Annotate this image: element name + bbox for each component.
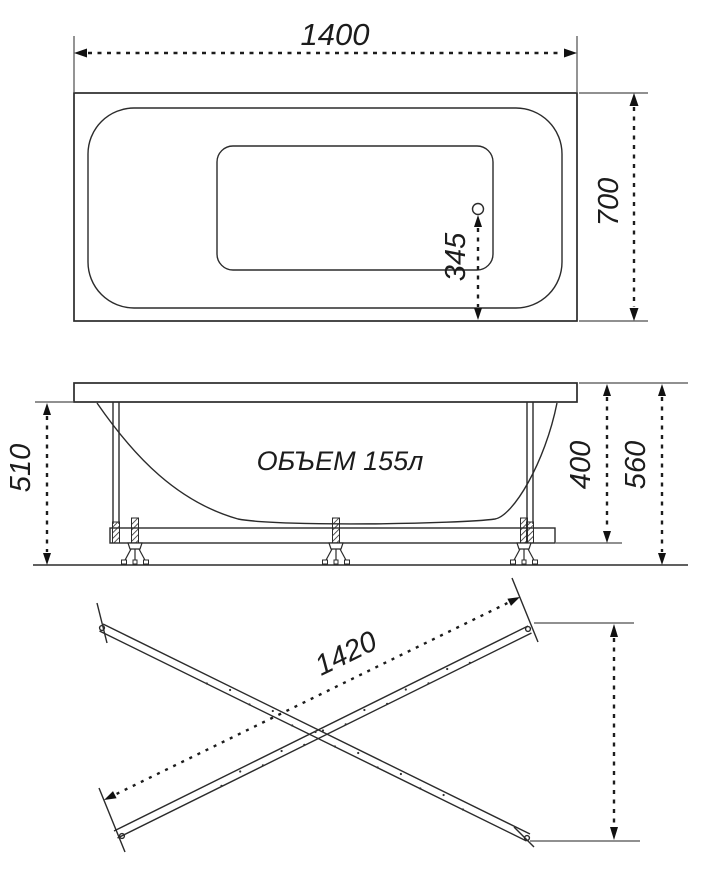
arrow-down-icon [43,553,51,565]
arrow-up-icon [474,215,482,227]
rim-to-frame-value: 400 [565,441,597,489]
arrow-up-icon [43,403,51,415]
rim-to-floor-value: 510 [5,444,37,492]
arrow-down-icon [603,531,611,543]
tub-outer-edge [74,93,577,321]
total-height-value: 560 [620,441,652,489]
arrow-up-icon [610,624,618,637]
dim-510: 510 [5,402,74,565]
arrow-left-icon [104,791,117,800]
rail-end-cap [97,603,107,643]
dim-drain-345: 345 [440,215,482,320]
drain-offset-value: 345 [440,232,472,281]
bathtub-technical-drawing: 1400 700 345 [0,0,703,888]
arrow-down-icon [658,553,666,565]
tub-rim-deck [74,383,577,402]
arrow-down-icon [610,827,618,840]
rail-bolt-hole [526,627,531,632]
adjustable-foot [323,518,350,564]
drawing-canvas: 1400 700 345 [0,0,703,888]
dim-rail-1420: 1420 [104,597,520,800]
arrow-up-icon [630,93,639,106]
arrow-up-icon [658,384,666,396]
drain-hole-icon [473,204,484,215]
arrow-right-icon [507,597,520,606]
rail-length-value: 1420 [310,625,382,682]
dim-length-1400: 1400 [74,17,577,92]
dimension-line [117,603,508,794]
arrow-down-icon [630,308,639,321]
arrow-up-icon [603,384,611,396]
top-view: 1400 700 345 [74,17,648,321]
volume-label: ОБЪЕМ 155л [257,446,424,476]
arrow-left-icon [74,49,87,58]
length-value: 1400 [301,17,370,52]
rail-falling [97,603,534,847]
width-value: 700 [593,178,625,226]
arrow-right-icon [564,49,577,58]
adjustable-foot [122,518,149,564]
left-post [113,402,120,543]
dim-400: 400 [556,384,622,543]
arrow-down-icon [474,308,482,320]
post-anchor [113,522,120,543]
tub-rim-edge [88,108,562,308]
rails-view: 1420 [97,578,640,852]
side-view: ОБЪЕМ 155л 510 400 560 [5,383,688,565]
dim-width-700: 700 [579,93,648,321]
dim-rails-height [530,623,640,841]
